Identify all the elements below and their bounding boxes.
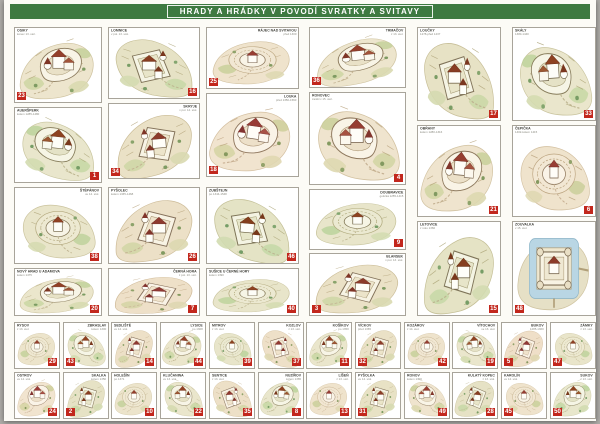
castle-panel: SUŠICE U ČERNÉ HORYkolem 139040 bbox=[206, 268, 299, 316]
castle-panel: RONOVECzanikl v 15. stol.4 bbox=[309, 92, 406, 185]
castle-panel: SKÁLY1380-144033 bbox=[512, 27, 596, 121]
castle-panel: BUKOV1285-13605 bbox=[501, 322, 547, 369]
castle-illustration bbox=[309, 253, 406, 316]
number-badge: 37 bbox=[292, 358, 301, 366]
number-badge: 26 bbox=[188, 253, 197, 261]
castle-poster: HRADY A HRÁDKY V POVODÍ SVRATKY A SVITAV… bbox=[4, 0, 596, 421]
number-badge: 5 bbox=[504, 358, 513, 366]
castle-panel: LYSICEpo 130844 bbox=[160, 322, 206, 369]
castle-panel: ZOUVALKAv 15. stol.48 bbox=[512, 221, 596, 316]
number-badge: 6 bbox=[584, 206, 593, 214]
castle-illustration bbox=[417, 125, 501, 217]
castle-panel: DOUBRAVICEgotická 1255-14159 bbox=[309, 189, 406, 250]
number-badge: 4 bbox=[394, 174, 403, 182]
number-badge: 36 bbox=[312, 77, 321, 85]
castle-panel: SENTICEz 13. stol.35 bbox=[209, 372, 255, 419]
castle-illustration bbox=[109, 28, 199, 98]
castle-panel: KOZÁROVz 14. stol.42 bbox=[404, 322, 450, 369]
number-badge: 20 bbox=[90, 305, 99, 313]
number-badge: 33 bbox=[584, 110, 593, 118]
number-badge: 38 bbox=[90, 253, 99, 261]
castle-panel: PYŠOLKAve 14. stol.31 bbox=[355, 372, 401, 419]
number-badge: 24 bbox=[48, 408, 57, 416]
castle-panel: TRMAČOVz 13. stol.36 bbox=[309, 27, 406, 88]
number-badge: 22 bbox=[194, 408, 203, 416]
poster-title-bar: HRADY A HRÁDKY V POVODÍ SVRATKY A SVITAV… bbox=[10, 4, 590, 19]
castle-panel: LOUČKY1278-před 143717 bbox=[417, 27, 501, 121]
castle-illustration bbox=[15, 269, 101, 315]
number-badge: 34 bbox=[111, 168, 120, 176]
castle-illustration bbox=[310, 93, 405, 184]
castle-panel: ČERNÁ HORAz pol. 13. stol.7 bbox=[108, 268, 200, 316]
number-badge: 19 bbox=[486, 358, 495, 366]
castle-panel: BLANSEKv pol. 13. stol.3 bbox=[309, 253, 406, 316]
number-badge: 45 bbox=[504, 408, 513, 416]
number-badge: 47 bbox=[553, 358, 562, 366]
number-badge: 50 bbox=[553, 408, 562, 416]
number-badge: 23 bbox=[17, 92, 26, 100]
castle-illustration bbox=[15, 188, 101, 263]
castle-panel: ŠTĚPÁNOVve 14. stol.38 bbox=[14, 187, 102, 264]
castle-panel: SUKOVz 13. stol.50 bbox=[550, 372, 596, 419]
castle-panel: SEDLIŠTĚve 14. stol.14 bbox=[111, 322, 157, 369]
castle-panel: AUERŠPERKkolem 1285-14801 bbox=[14, 107, 102, 183]
poster-title-box: HRADY A HRÁDKY V POVODÍ SVRATKY A SVITAV… bbox=[167, 5, 433, 18]
castle-panel: SKALKAkolem 13502 bbox=[63, 372, 109, 419]
castle-illustration bbox=[207, 28, 298, 88]
castle-illustration bbox=[418, 222, 500, 315]
castle-panel: NOVÝ HRAD U ADAMOVAkolem 147520 bbox=[14, 268, 102, 316]
castle-illustration bbox=[108, 268, 200, 316]
poster-title: HRADY A HRÁDKY V POVODÍ SVRATKY A SVITAV… bbox=[180, 7, 420, 16]
castle-panel: KAROLÍNve 14. stol.45 bbox=[501, 372, 547, 419]
number-badge: 11 bbox=[340, 358, 349, 366]
number-badge: 42 bbox=[438, 358, 447, 366]
castle-illustration bbox=[15, 28, 101, 102]
castle-panel: LETOVICEz roku 136015 bbox=[417, 221, 501, 316]
castle-panel: HOLEŠÍNpo 137110 bbox=[111, 372, 157, 419]
number-badge: 13 bbox=[340, 408, 349, 416]
castle-illustration bbox=[207, 269, 298, 315]
castle-panel: OSIKYkonec 13. stol.23 bbox=[14, 27, 102, 103]
castle-panel: RÁJEC NAD SVITAVOUpřed 130025 bbox=[206, 27, 299, 89]
number-badge: 46 bbox=[287, 253, 296, 261]
castle-illustration bbox=[512, 27, 596, 121]
number-badge: 10 bbox=[145, 408, 154, 416]
castle-panel: VÍTOCHOVve 13. stol.19 bbox=[452, 322, 498, 369]
castle-panel: KLUČANINAve 13. stol.22 bbox=[160, 372, 206, 419]
number-badge: 28 bbox=[486, 408, 495, 416]
number-badge: 48 bbox=[515, 305, 524, 313]
castle-illustration bbox=[108, 103, 200, 179]
number-badge: 14 bbox=[145, 358, 154, 366]
number-badge: 3 bbox=[312, 305, 321, 313]
number-badge: 7 bbox=[188, 305, 197, 313]
number-badge: 44 bbox=[194, 358, 203, 366]
number-badge: 49 bbox=[438, 408, 447, 416]
castle-panel: LÍŠEŇz 13. stol.13 bbox=[306, 372, 352, 419]
number-badge: 8 bbox=[292, 408, 301, 416]
castle-panel: OSTROVve 14. stol.24 bbox=[14, 372, 60, 419]
number-badge: 18 bbox=[209, 166, 218, 174]
number-badge: 16 bbox=[188, 88, 197, 96]
castle-illustration bbox=[310, 190, 405, 249]
castle-panel: OBŘANYkolem 1280-131621 bbox=[417, 125, 501, 217]
castle-panel: KOZLOVz 13. stol.37 bbox=[258, 322, 304, 369]
castle-panel: LOUKApřed 1350-156018 bbox=[206, 93, 299, 177]
number-badge: 21 bbox=[489, 206, 498, 214]
number-badge: 2 bbox=[66, 408, 75, 416]
castle-illustration bbox=[109, 188, 199, 263]
castle-panel: MITROVz 13. stol.39 bbox=[209, 322, 255, 369]
castle-panel: KULATÝ KOPECz 13. stol.28 bbox=[452, 372, 498, 419]
castle-illustration bbox=[309, 27, 406, 88]
number-badge: 40 bbox=[287, 305, 296, 313]
number-badge: 43 bbox=[66, 358, 75, 366]
castle-illustration bbox=[14, 107, 102, 183]
number-badge: 15 bbox=[489, 305, 498, 313]
castle-panel: PYŠOLECkolem 1335-146826 bbox=[108, 187, 200, 264]
castle-panel: RONOVkolem 130049 bbox=[404, 372, 450, 419]
number-badge: 1 bbox=[90, 172, 99, 180]
castle-panel: ZUBŠTEJNpo 1344-154846 bbox=[206, 187, 299, 264]
castle-panel: ZBRASLAVkolem 130043 bbox=[63, 322, 109, 369]
castle-panel: SKRYJEv pol. 14. stol.34 bbox=[108, 103, 200, 179]
castle-panel: ZÁMKYz 13. stol.47 bbox=[550, 322, 596, 369]
castle-panel: KOŠÍKOVpo 135011 bbox=[306, 322, 352, 369]
number-badge: 17 bbox=[489, 110, 498, 118]
number-badge: 29 bbox=[48, 358, 57, 366]
number-badge: 35 bbox=[243, 408, 252, 416]
castle-illustration bbox=[206, 187, 299, 264]
number-badge: 31 bbox=[358, 408, 367, 416]
number-badge: 39 bbox=[243, 358, 252, 366]
castle-panel: NUZÍŘOVkolem 13658 bbox=[258, 372, 304, 419]
castle-panel: LOMNICEv pol. 13. stol.16 bbox=[108, 27, 200, 99]
number-badge: 25 bbox=[209, 78, 218, 86]
castle-panel: RYSOVz 13. stol.29 bbox=[14, 322, 60, 369]
castle-illustration bbox=[206, 93, 299, 177]
castle-panel: VÍCKOVpřed 136532 bbox=[355, 322, 401, 369]
castle-panel: ČEPIČKA1402-kolem 14156 bbox=[512, 125, 596, 217]
castle-illustration bbox=[513, 222, 595, 315]
number-badge: 9 bbox=[394, 239, 403, 247]
castle-illustration bbox=[418, 28, 500, 120]
number-badge: 32 bbox=[358, 358, 367, 366]
castle-illustration bbox=[513, 126, 595, 216]
